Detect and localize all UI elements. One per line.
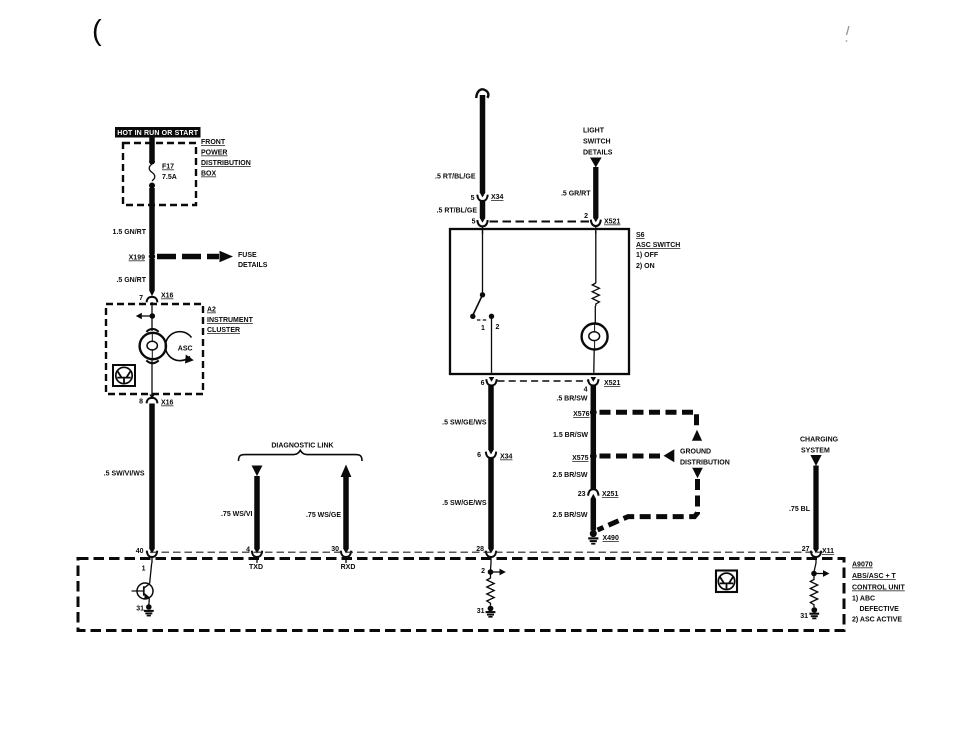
svg-text:F17: F17 bbox=[162, 164, 174, 171]
svg-text:7: 7 bbox=[139, 295, 143, 302]
svg-text:X16: X16 bbox=[161, 400, 174, 407]
svg-text:23: 23 bbox=[578, 491, 586, 498]
svg-text:.5 BR/SW: .5 BR/SW bbox=[556, 396, 588, 403]
svg-text:.5 SW/GE/WS: .5 SW/GE/WS bbox=[442, 420, 487, 427]
svg-text:(: ( bbox=[92, 15, 102, 47]
svg-text:.75 BL: .75 BL bbox=[789, 506, 811, 513]
svg-text:DETAILS: DETAILS bbox=[583, 149, 613, 156]
svg-text:HOT IN RUN OR START: HOT IN RUN OR START bbox=[117, 130, 198, 137]
svg-text:6: 6 bbox=[477, 452, 481, 459]
svg-text:POWER: POWER bbox=[201, 150, 227, 157]
svg-text:5: 5 bbox=[471, 195, 475, 202]
svg-text:.5 GN/RT: .5 GN/RT bbox=[116, 277, 146, 284]
svg-text:DISTRIBUTION: DISTRIBUTION bbox=[201, 160, 251, 167]
svg-text:2.5 BR/SW: 2.5 BR/SW bbox=[552, 512, 587, 519]
svg-text:BOX: BOX bbox=[201, 171, 217, 178]
svg-text:.5 RT/BL/GE: .5 RT/BL/GE bbox=[435, 174, 476, 181]
svg-text:TXD: TXD bbox=[249, 564, 263, 571]
svg-text:4: 4 bbox=[584, 387, 588, 394]
svg-text:X34: X34 bbox=[500, 454, 513, 461]
svg-text:CHARGING: CHARGING bbox=[800, 436, 839, 443]
svg-text:.5 RT/BL/GE: .5 RT/BL/GE bbox=[437, 208, 478, 215]
svg-text:X251: X251 bbox=[602, 491, 618, 498]
svg-text:SWITCH: SWITCH bbox=[583, 138, 611, 145]
svg-text:ASC: ASC bbox=[178, 346, 193, 353]
svg-text:1.5 BR/SW: 1.5 BR/SW bbox=[553, 432, 588, 439]
svg-text:X490: X490 bbox=[603, 535, 619, 542]
svg-text:5: 5 bbox=[472, 219, 476, 226]
svg-text:X34: X34 bbox=[491, 194, 504, 201]
svg-text:RXD: RXD bbox=[341, 564, 356, 571]
svg-text:2) ASC ACTIVE: 2) ASC ACTIVE bbox=[852, 617, 902, 624]
svg-text:LIGHT: LIGHT bbox=[583, 127, 605, 134]
svg-text:X199: X199 bbox=[129, 255, 145, 262]
svg-text:X521: X521 bbox=[604, 219, 620, 226]
svg-text:.75 WS/GE: .75 WS/GE bbox=[306, 512, 341, 519]
svg-text:ASC SWITCH: ASC SWITCH bbox=[636, 242, 680, 249]
svg-text:2: 2 bbox=[584, 213, 588, 220]
svg-text:S6: S6 bbox=[636, 232, 645, 239]
svg-text:ABS/ASC + T: ABS/ASC + T bbox=[852, 573, 896, 580]
svg-text:1) ABC: 1) ABC bbox=[852, 596, 875, 603]
svg-text:SYSTEM: SYSTEM bbox=[801, 447, 830, 454]
svg-text:DEFECTIVE: DEFECTIVE bbox=[860, 606, 900, 613]
svg-text:X16: X16 bbox=[161, 293, 174, 300]
svg-text:40: 40 bbox=[136, 548, 144, 555]
svg-text:X521: X521 bbox=[604, 380, 620, 387]
svg-text:.5 SW/VI/WS: .5 SW/VI/WS bbox=[104, 471, 145, 478]
svg-text:X11: X11 bbox=[822, 548, 834, 555]
svg-text:FRONT: FRONT bbox=[201, 139, 226, 146]
svg-text:2) ON: 2) ON bbox=[636, 263, 655, 270]
svg-text:A2: A2 bbox=[207, 307, 216, 314]
svg-text:31: 31 bbox=[477, 608, 485, 615]
svg-text:2.5 BR/SW: 2.5 BR/SW bbox=[552, 472, 587, 479]
svg-text:CONTROL UNIT: CONTROL UNIT bbox=[852, 585, 905, 592]
svg-text:1.5 GN/RT: 1.5 GN/RT bbox=[113, 229, 147, 236]
svg-text:7.5A: 7.5A bbox=[162, 174, 177, 181]
svg-text:2: 2 bbox=[496, 324, 500, 331]
svg-text:DIAGNOSTIC LINK: DIAGNOSTIC LINK bbox=[271, 443, 333, 450]
svg-text:1: 1 bbox=[481, 325, 485, 332]
svg-text:GROUND: GROUND bbox=[680, 449, 711, 456]
svg-text:X576: X576 bbox=[573, 411, 589, 418]
svg-text:1) OFF: 1) OFF bbox=[636, 252, 659, 259]
svg-text:31: 31 bbox=[136, 606, 144, 613]
svg-text:DETAILS: DETAILS bbox=[238, 262, 268, 269]
svg-text:.5 GR/RT: .5 GR/RT bbox=[561, 191, 591, 198]
svg-text:8: 8 bbox=[139, 399, 143, 406]
svg-text:.75 WS/VI: .75 WS/VI bbox=[221, 511, 253, 518]
svg-text:FUSE: FUSE bbox=[238, 252, 257, 259]
svg-text:X575: X575 bbox=[572, 455, 588, 462]
svg-text:31: 31 bbox=[800, 613, 808, 620]
svg-text:1: 1 bbox=[142, 566, 146, 573]
svg-text:2: 2 bbox=[481, 568, 485, 575]
svg-text:6: 6 bbox=[481, 380, 485, 387]
svg-text:CLUSTER: CLUSTER bbox=[207, 327, 240, 334]
svg-text:DISTRIBUTION: DISTRIBUTION bbox=[680, 460, 730, 467]
svg-text:.5 SW/GE/WS: .5 SW/GE/WS bbox=[442, 500, 487, 507]
svg-text:A9070: A9070 bbox=[852, 562, 873, 569]
svg-text:INSTRUMENT: INSTRUMENT bbox=[207, 317, 254, 324]
